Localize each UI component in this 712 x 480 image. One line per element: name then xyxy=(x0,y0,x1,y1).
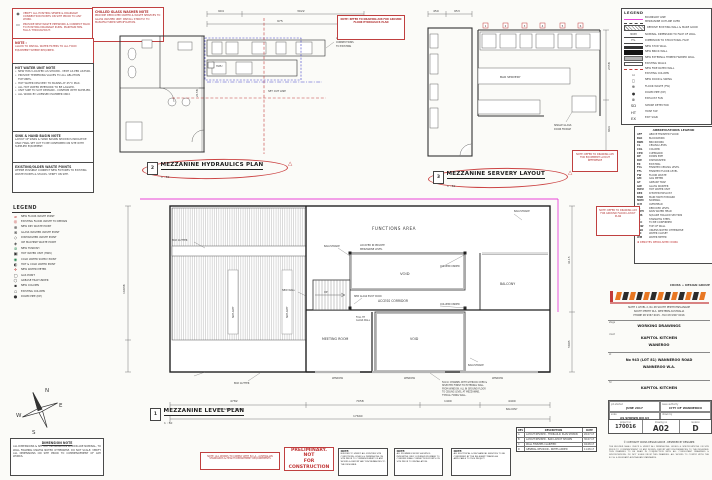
disclaimer-text: THE BUILDER SHALL CHECK & VERIFY ALL DIM… xyxy=(609,446,709,460)
servery-equipment-tags: 1 2 3 4 5 6 xyxy=(483,23,583,28)
servery-benches xyxy=(430,32,600,156)
revision-date: 26.07.17 xyxy=(583,433,596,437)
meeting-room-label: MEETING ROOM xyxy=(322,337,349,341)
window-label-3: WINDOW xyxy=(492,377,504,380)
legend-item-label: NEW DRY WASTE POINT xyxy=(21,226,51,229)
hydraulics-legend: LEGEND ⌀ NEW FLOOR WASTE POINT ◎ EXISTIN… xyxy=(12,194,106,301)
job-started-value: JUNE 2017 xyxy=(611,406,658,410)
legend-item-label: GREASE TRAP UNDER xyxy=(21,280,49,283)
sink-note-body: LAYOUT OF SINKS & HAND BASINS SHOWN IS I… xyxy=(15,138,91,148)
revision-row: D GENERAL REVISION - NOTES ADDED 11.08.1… xyxy=(517,447,596,451)
drawing-legend-label: EXIT SIGN xyxy=(645,117,658,120)
drawing-legend-item: ● DOWN PIPE (DP) xyxy=(624,91,709,96)
legend-item: ● DOWN PIPE (DP) xyxy=(12,295,106,299)
drawing-legend-item: NEW FIRE RATED WALL xyxy=(624,67,709,70)
legend-item: ⌀ NEW FLOOR WASTE POINT xyxy=(12,215,106,219)
dimension-note-body: ALL DIMENSIONS & SET OUT INFORMATION SHO… xyxy=(13,445,101,458)
legend-item-label: GLASS WASHER WASTE POINT xyxy=(21,232,60,235)
stage-value: WORKING DRAWINGS xyxy=(608,324,710,328)
project-name: KAPITOL KITCHEN xyxy=(608,386,710,390)
drawing-legend-label: NEW FIRE RATED WALL xyxy=(645,68,674,71)
legend-item-label: GAS POINT xyxy=(21,275,35,278)
dim-total: 17640 xyxy=(353,414,363,418)
drawing-legend-item: ▫ EXISTING COLUMN xyxy=(624,72,709,77)
bar-servery-label: BAR SERVERY xyxy=(500,75,521,79)
legend-swatch-icon xyxy=(624,56,643,60)
hydraulics-plan-caption: 2 MEZZANINE HYDRAULICS PLAN xyxy=(147,162,263,175)
new-wall-label: NEW WALL xyxy=(282,289,296,292)
dim-left: 16938 xyxy=(122,284,126,294)
legend-swatch-icon: F.S. xyxy=(624,39,643,44)
general-note-2: NOTE: ALL PLUMBING WORK SHOWN IS INDICAT… xyxy=(394,448,443,476)
drawing-number-block: project no 170016 drawing no A02 revisio… xyxy=(608,419,712,434)
legend-swatch-icon: EX xyxy=(624,116,643,121)
drawing-legend-label: REMOVE EXISTING WALL & MAKE GOOD xyxy=(647,27,698,30)
window-label-2: WINDOW xyxy=(404,377,416,380)
hot-water-unit-note-box: HOT WATER UNIT NOTE • NEW HWU LOCATED AS… xyxy=(12,63,94,132)
revision-letter: B xyxy=(517,438,525,442)
hot-water-note-bullet: • PROVIDE TEMPERING VALVES TO ALL ABLUTI… xyxy=(15,74,91,81)
drawing-legend-label: NOMINAL DIMENSION TO FACE OF WALL xyxy=(645,34,696,37)
level-plan-title: MEZZANINE LEVEL PLAN xyxy=(164,408,245,416)
dim-bottom-2: 7058 xyxy=(356,399,364,403)
compliance-note: NOTE: ALL WORKS TO COMPLY WITH B.C.A., A… xyxy=(200,452,280,470)
drawing-legend-label: NEW STUD WALL xyxy=(645,46,667,49)
for-label: for xyxy=(609,381,612,384)
company-logo-icon xyxy=(609,290,710,304)
sink-note-box: SINK & HAND BASIN NOTE LAYOUT OF SINKS &… xyxy=(12,131,94,163)
drawing-legend-item: REMOVE EXISTING WALL & MAKE GOOD xyxy=(624,25,709,31)
preliminary-line-1: PRELIMINARY. NOT xyxy=(285,448,333,459)
legend-item-label: COLD WATER SUPPLY POINT xyxy=(21,259,56,262)
balustrade-label-2: BALUSTRADE xyxy=(514,210,530,213)
drawing-legend-item: ⊕ FLOOR WASTE (FW) xyxy=(624,84,709,89)
copyright-line: © COPYRIGHT CROSS DESIGN GROUP - RESERVE… xyxy=(608,441,710,444)
legend-item-label: EXISTING COLUMN xyxy=(21,291,45,294)
balustrade-label-1: BALUSTRADE xyxy=(324,245,340,248)
svg-text:TYPICAL FIXING WALL.: TYPICAL FIXING WALL. xyxy=(442,394,467,397)
note-ref-a08: NOTE: REFER TO DRAWING A08 FOR GROUND FL… xyxy=(337,15,405,40)
svg-text:SINGLE GLASS: SINGLE GLASS xyxy=(554,124,572,127)
legend-symbol-icon: ● xyxy=(12,295,19,299)
revision-letter: D xyxy=(517,447,525,451)
hydraulics-plan-scale: 1 : 50 xyxy=(161,175,169,179)
hot-water-note-bullet: • HOT WATER DELIVERY TO BASINS AT 45°C M… xyxy=(15,82,91,85)
revision-date: 04.08.17 xyxy=(583,443,596,447)
legend-item-label: DOWN PIPE (DP) xyxy=(21,296,42,299)
drawing-legend-item: SD SMOKE DETECTOR xyxy=(624,103,709,108)
drawing-legend-label: HOSE TAP xyxy=(645,111,658,114)
legend-item-label: ICE MACHINE WASTE POINT xyxy=(21,242,56,245)
drain-symbol-icon: ▭ xyxy=(15,23,21,27)
void2-label: VOID xyxy=(410,337,419,341)
legend-item-label: NEW WATER METER xyxy=(21,269,46,272)
level-plan-number: 1 xyxy=(150,408,161,421)
svg-text:DOOR FRIDGE: DOOR FRIDGE xyxy=(554,128,571,131)
drawing-legend-label: EXISTING WALLS xyxy=(645,63,666,66)
bullet-icon: • xyxy=(15,93,17,96)
legend-item: ⊕ NEW DRY WASTE POINT xyxy=(12,226,106,230)
filter-note-box: NOTE : ALLOW TO INSTALL WATER FILTERS TO… xyxy=(12,38,94,64)
company-address-2: SOUTH PERTH W.A. WESTERN AUSTRALIA xyxy=(608,310,710,313)
drawing-legend-item: ◻ NEW DOOR & SWING xyxy=(624,78,709,83)
svg-text:5: 5 xyxy=(562,24,564,28)
hyd-dim-3: 975 xyxy=(277,19,283,23)
drawing-legend-label: NEW EXTERNAL TIMBER FRAMED WALL xyxy=(645,57,695,60)
box-gutter-label-1: BOX GUTTER xyxy=(172,239,188,242)
drain-note-text: VERIFY ALL EXISTING SEWER & DRAINAGE CON… xyxy=(23,12,91,22)
srv-dim-4: 964 xyxy=(607,126,611,132)
at-label: at xyxy=(609,353,611,356)
srv-dim-2: 953 xyxy=(454,9,460,13)
legend-item: ◎ EXISTING FLOOR WASTE TO REMAIN xyxy=(12,220,106,224)
glass-wall-label-2: GLASS WALL xyxy=(356,319,371,322)
north-compass: N E S W xyxy=(14,384,66,436)
servery-plan-scale: 1 : 50 xyxy=(447,184,455,188)
drawing-sheet: ◉ VERIFY ALL EXISTING SEWER & DRAINAGE C… xyxy=(0,0,712,480)
hot-water-note-title: HOT WATER UNIT NOTE xyxy=(15,66,91,70)
svg-text:UP: UP xyxy=(324,290,328,294)
legend-symbol-icon: ✛ xyxy=(12,268,19,272)
legend-swatch-icon: ● xyxy=(624,91,643,96)
column-under-label-2: COLUMN UNDER xyxy=(440,303,460,306)
revision-date: 11.08.17 xyxy=(583,447,596,451)
servery-plan-title: MEZZANINE SERVERY LAYOUT xyxy=(447,171,545,179)
preliminary-stamp: PRELIMINARY. NOT FOR CONSTRUCTION xyxy=(284,447,334,471)
legend-swatch-icon xyxy=(624,62,643,66)
legend-item: ◇ DISHWASHER WASTE POINT xyxy=(12,236,106,240)
bullet-icon: • xyxy=(15,74,17,81)
legend-item: ◉ COLD WATER SUPPLY POINT xyxy=(12,258,106,262)
legend-swatch-icon xyxy=(624,25,645,31)
issue-authority-value: CITY OF WANNEROO xyxy=(662,406,709,410)
company-phone: PHONE 08 9367 6015 - FAX 08 9367 6016 xyxy=(608,314,710,317)
logo-text: CROSS + DESIGN GROUP xyxy=(650,283,710,287)
drainage-note-box: ◉ VERIFY ALL EXISTING SEWER & DRAINAGE C… xyxy=(12,8,94,39)
legend-item-label: NEW FLOOR WASTE POINT xyxy=(21,216,55,219)
hydraulics-plan-number: 2 xyxy=(147,162,158,175)
waste-points-note-box: EXISTING/OLDER WASTE POINTS WHERE POSSIB… xyxy=(12,162,94,193)
drawing-no-value: A02 xyxy=(644,424,678,433)
client-name-1: KAPITOL KITCHEN xyxy=(608,336,710,340)
revision-triangle-icon: △ xyxy=(288,162,292,168)
dim-label-balcony: BALCONY xyxy=(506,408,518,411)
legend-item: ⊗ GLASS WASHER WASTE POINT xyxy=(12,231,106,235)
legend-item-label: NEW TUNDISH xyxy=(21,248,39,251)
level-plan-scale: 1 : 50 xyxy=(164,421,172,425)
drawing-legend-label: EXISTING COLUMN xyxy=(645,73,669,76)
legend-swatch-icon xyxy=(624,50,643,55)
legend-item: ✛ NEW WATER METER xyxy=(12,268,106,272)
svg-text:2: 2 xyxy=(505,24,507,28)
hyd-dim-4: 2158 xyxy=(195,89,199,97)
svg-text:TO EXISTING: TO EXISTING xyxy=(336,45,351,48)
hwu-symbol xyxy=(208,62,214,68)
drawing-legend-item: EXISTING WALLS xyxy=(624,62,709,66)
dim-right-2: 5905 xyxy=(567,340,571,348)
legend-item-label: EXISTING FLOOR WASTE TO REMAIN xyxy=(21,221,67,224)
drawing-legend-label: NEW DOOR & SWING xyxy=(645,79,672,82)
drawing-legend-label: NEW BRICK WALL xyxy=(645,51,667,54)
drainage-note-item: ◉ VERIFY ALL EXISTING SEWER & DRAINAGE C… xyxy=(15,12,91,22)
level-plan-drawing: SKYLIGHT SKYLIGHT UP xyxy=(110,190,592,436)
hydraulics-walls xyxy=(120,36,325,152)
legend-item: ◈ ICE MACHINE WASTE POINT xyxy=(12,242,106,246)
general-note-1: NOTE: BUILDER TO VERIFY ALL EXISTING SIT… xyxy=(338,448,388,476)
filter-note-body: ALLOW TO INSTALL WATER FILTERS TO ALL FO… xyxy=(15,45,91,52)
revision-value: D xyxy=(681,424,710,433)
legend-swatch-icon xyxy=(624,19,643,20)
svg-text:1: 1 xyxy=(485,24,487,28)
roof-hatch-area: SKYLIGHT SKYLIGHT xyxy=(172,208,306,340)
dimension-note-box: DIMENSION NOTE ALL DIMENSIONS & SET OUT … xyxy=(10,438,104,476)
waste-points-note-body: WHERE POSSIBLE CONNECT NEW FIXTURES TO E… xyxy=(15,169,91,176)
servery-layout-drawing: 450 953 2358 964 xyxy=(420,4,612,166)
box-gutter-label-2: BOX GUTTER xyxy=(234,382,250,385)
abbreviation-code: WM xyxy=(637,236,648,240)
drainage-note-item: ▭ PROVIDE NEW WASTE PIPEWORK & CONNECT B… xyxy=(15,23,91,33)
functions-area-label: FUNCTIONS AREA xyxy=(372,226,416,231)
bullet-text: PROVIDE TEMPERING VALVES TO ALL ABLUTION… xyxy=(18,74,91,81)
legend-symbol-icon: ▣ xyxy=(12,252,19,256)
legend-swatch-icon xyxy=(624,69,643,70)
note-ref-a03: NOTE: REFER TO DRAWING A03 FOR GROUND FL… xyxy=(596,206,640,236)
legend-swatch-icon: ▫ xyxy=(624,72,643,77)
revision-description: LAYOUT REVISED - HYDRAULIC PLAN SHOWN xyxy=(525,433,583,437)
dim-bottom-1: 4782 xyxy=(230,399,238,403)
compass-w: W xyxy=(16,413,22,419)
legend-swatch-icon: NOM xyxy=(624,33,643,38)
drawing-legend-item: ⊗ EXHAUST FAN xyxy=(624,97,709,102)
hydraulics-plan-title: MEZZANINE HYDRAULICS PLAN xyxy=(161,162,264,170)
sink-note-title: SINK & HAND BASIN NOTE xyxy=(15,134,91,138)
legend-swatch-icon: HT xyxy=(624,110,643,115)
drawing-legend-label: DIMENSION TO STRUCTURAL FACE xyxy=(645,40,689,43)
abbreviations-red-note: ✱ DENOTES DEMOLISHED WORK xyxy=(637,241,710,244)
bullet-text: HOT WATER DELIVERY TO BASINS AT 45°C MAX… xyxy=(18,82,80,85)
compass-e: E xyxy=(59,403,63,409)
legend-swatch-icon: ⊕ xyxy=(624,84,643,89)
drawing-legend-item: NOM NOMINAL DIMENSION TO FACE OF WALL xyxy=(624,33,709,38)
general-note-3: NOTE: ALL ELECTRICAL & MECHANICAL SERVIC… xyxy=(451,448,511,476)
client-name-2: WANEROO xyxy=(608,343,710,347)
fridge-label: SINGLE GLASS DOOR FRIDGE xyxy=(554,112,572,131)
drawing-legend-item: MEZZANINE OUTLINE OVER xyxy=(624,21,709,24)
dim-bottom-4: 4400 xyxy=(508,399,516,403)
drawing-legend-item: F.S. DIMENSION TO STRUCTURAL FACE xyxy=(624,39,709,44)
legend-swatch-icon: ⊗ xyxy=(624,97,643,102)
legend-symbol-icon: ◇ xyxy=(12,236,19,240)
svg-text:SKYLIGHT: SKYLIGHT xyxy=(232,306,235,318)
legend-item-label: HOT WATER UNIT (HWU) xyxy=(21,253,52,256)
revision-description: LAYOUT REVISED - BAR LAYOUT SHOWN xyxy=(525,438,583,442)
revision-table: REV DESCRIPTION DATE A LAYOUT REVISED - … xyxy=(516,427,597,452)
drawing-legend-item: HT HOSE TAP xyxy=(624,110,709,115)
drawing-legend-label: SMOKE DETECTOR xyxy=(645,105,669,108)
site-address-2: WANNEROO W.A. xyxy=(608,365,710,369)
drawing-legend-label: MEZZANINE OUTLINE OVER xyxy=(645,21,680,24)
legend-swatch-icon xyxy=(624,23,643,24)
hyd-dim-1: 904 xyxy=(218,9,224,13)
srv-dim-1: 450 xyxy=(433,9,439,13)
hyd-dim-2: 3022 xyxy=(297,9,305,13)
legend-item-label: DISHWASHER WASTE POINT xyxy=(21,237,57,240)
legend-symbol-icon: ◎ xyxy=(12,220,19,224)
legend-swatch-icon: SD xyxy=(624,103,643,108)
svg-text:4: 4 xyxy=(542,24,544,28)
note-ref-a05: NOTE: REFER TO DRAWING A05 FOR EQUIPMENT… xyxy=(572,150,618,172)
drawing-legend-label: DOWN PIPE (DP) xyxy=(645,92,666,95)
revision-description: GENERAL REVISION - NOTES ADDED xyxy=(525,447,583,451)
compass-n: N xyxy=(45,388,49,394)
setout-label: SET OUT LINE xyxy=(268,89,286,93)
servery-plan-caption: 3 MEZZANINE SERVERY LAYOUT xyxy=(433,171,545,184)
legend-item: ▢ GAS POINT xyxy=(12,274,106,278)
legend-item-label: HOT & COLD WATER POINT xyxy=(21,264,55,267)
drawing-legend-box: LEGEND BOUNDARY LINE MEZZANINE OUTLINE O… xyxy=(621,8,712,125)
hwu-label: HWU xyxy=(216,64,223,68)
legend-item: ▫ EXISTING COLUMN xyxy=(12,290,106,294)
balustrade-label-3: BALUSTRADE xyxy=(468,364,484,367)
company-address-1: SUITE 1 LEVEL 2, No 48 SOUTH PERTH ESPLA… xyxy=(608,306,710,309)
legend-item: ◐ HOT & COLD WATER POINT xyxy=(12,263,106,267)
svg-text:SKYLIGHT: SKYLIGHT xyxy=(286,306,289,318)
project-no-value: 170016 xyxy=(610,424,641,430)
drawing-legend-item: NEW EXTERNAL TIMBER FRAMED WALL xyxy=(624,56,709,60)
drawing-legend-item: EX EXIT SIGN xyxy=(624,116,709,121)
drawing-legend-item: NEW STUD WALL xyxy=(624,45,709,48)
balcony-label: BALCONY xyxy=(500,282,515,286)
srv-dim-3: 2358 xyxy=(607,62,611,70)
svg-text:CONNECTIONS: CONNECTIONS xyxy=(336,41,354,44)
drawing-legend-title: LEGEND xyxy=(624,11,709,16)
level-plan-caption: 1 MEZZANINE LEVEL PLAN xyxy=(150,408,244,421)
legend-item: ⬡ GREASE TRAP UNDER xyxy=(12,279,106,283)
corridor-label: ACCESS CORRIDOR xyxy=(378,299,409,303)
bullet-text: ALL WORK BY LICENSED PLUMBER ONLY. xyxy=(18,93,70,96)
legend-item: ▪ NEW COLUMN xyxy=(12,284,106,288)
functions-note-1: LOCATED IN PRIVATE xyxy=(360,244,385,247)
revision-letter: A xyxy=(517,433,525,437)
functions-note-2: MEZZANINE LEVEL xyxy=(360,248,383,251)
drawing-legend-label: FLOOR WASTE (FW) xyxy=(645,86,670,89)
hot-water-note-bullet: • ALL WORK BY LICENSED PLUMBER ONLY. xyxy=(15,93,91,96)
abbreviations-box: ABBREVIATIONS LEGEND AFF ABOVE FINISHED … xyxy=(634,126,712,264)
pivot-door-label: NEW GLASS PIVOT DOOR xyxy=(354,295,382,298)
void1-label: VOID xyxy=(400,271,410,276)
stair: UP xyxy=(313,280,350,310)
svg-text:3: 3 xyxy=(524,24,526,28)
abbreviation-row: WM WATER METER xyxy=(637,236,710,240)
site-address-1: No 943 (LOT 81) WANNEROO ROAD xyxy=(608,358,710,362)
revision-description: WALL FINISHES CLARIFIED xyxy=(525,443,583,447)
preliminary-line-2: FOR CONSTRUCTION xyxy=(285,459,333,470)
legend-item: ▣ HOT WATER UNIT (HWU) xyxy=(12,252,106,256)
filter-note-title: NOTE : xyxy=(15,41,91,45)
compass-s: S xyxy=(32,430,36,436)
revision-date: 30.07.17 xyxy=(583,438,596,442)
legend-item-label: NEW COLUMN xyxy=(21,285,39,288)
hydraulics-plan-drawing: 904 3022 975 2158 xyxy=(112,2,374,160)
drawn-by-label: drawn by xyxy=(662,413,709,416)
drawing-legend-label: EXHAUST FAN xyxy=(645,98,663,101)
window-label-1: WINDOW xyxy=(332,377,344,380)
drain-symbol-icon: ◉ xyxy=(15,12,21,16)
legend-swatch-icon: ◻ xyxy=(624,78,643,83)
legend-item: ⊚ NEW TUNDISH xyxy=(12,247,106,251)
hydraulics-legend-title: LEGEND xyxy=(12,206,51,213)
dim-bottom-3: 1400 xyxy=(444,399,452,403)
dim-right-1: 4115 xyxy=(567,256,571,264)
waste-points-note-title: EXISTING/OLDER WASTE POINTS xyxy=(15,165,91,169)
drain-note-text: PROVIDE NEW WASTE PIPEWORK & CONNECT BAC… xyxy=(23,23,91,33)
legend-swatch-icon xyxy=(624,46,643,48)
abbreviation-meaning: WATER METER xyxy=(649,236,710,240)
svg-text:6: 6 xyxy=(580,24,582,28)
drawing-legend-item: NEW BRICK WALL xyxy=(624,50,709,55)
wall-note: 50mm CHANNEL WITH GYPROCK OVER & SELECTE… xyxy=(442,381,487,397)
revision-letter: C xyxy=(517,443,525,447)
abbreviations-title: ABBREVIATIONS LEGEND xyxy=(637,129,710,133)
servery-plan-number: 3 xyxy=(433,171,444,184)
column-under-label-1: COLUMN UNDER xyxy=(440,265,460,268)
dimension-note-title: DIMENSION NOTE xyxy=(13,441,101,445)
